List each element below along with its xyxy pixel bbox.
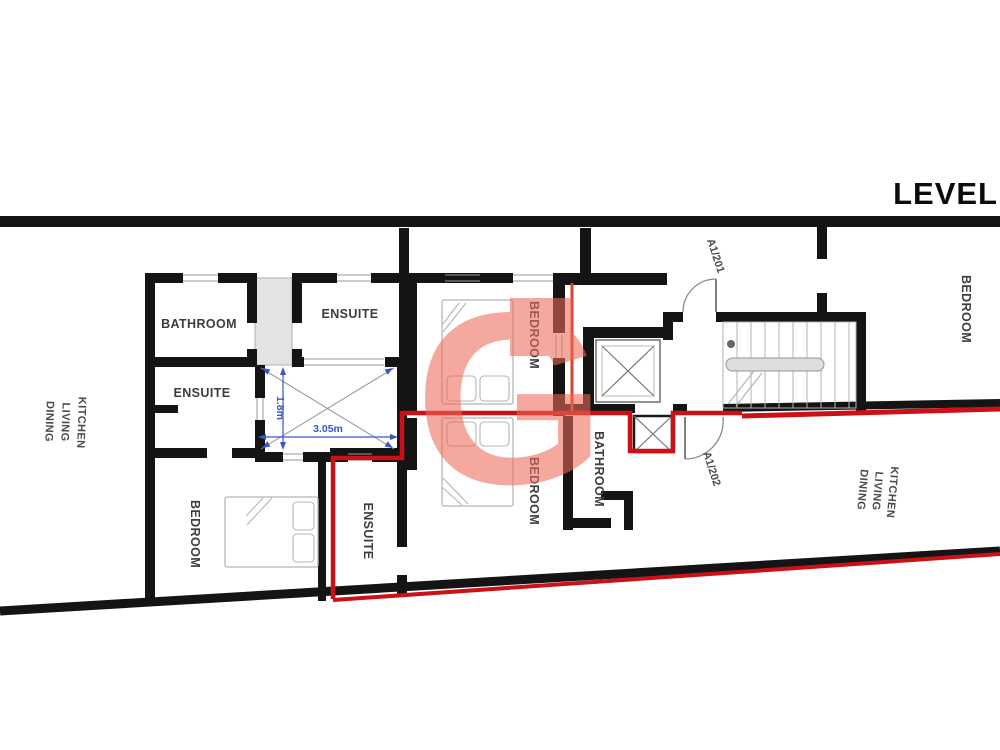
stair-start-dot <box>727 340 735 348</box>
room-label-bathroom-top-left: BATHROOM <box>161 317 237 331</box>
dimension-width: 3.05m <box>258 423 398 440</box>
unit-label-a1-201: A1/201 <box>704 237 726 274</box>
watermark-letter: G <box>415 261 606 535</box>
kld-left-line2: LIVING <box>58 402 71 441</box>
staircase <box>723 322 856 408</box>
kld-left-line1: KITCHEN <box>74 397 88 449</box>
kld-right-line2: LIVING <box>869 471 884 511</box>
dimension-width-label: 3.05m <box>313 423 343 435</box>
room-label-bedroom-top-right: BEDROOM <box>959 275 973 343</box>
kld-left-line3: DINING <box>42 401 55 442</box>
unit-label-a1-202: A1/202 <box>700 450 722 487</box>
kld-right-line3: DINING <box>854 469 870 511</box>
room-label-bedroom-bottom-left: BEDROOM <box>188 500 202 568</box>
dimension-depth-label: 1.8m <box>274 396 286 420</box>
service-shaft <box>634 416 672 452</box>
room-label-ensuite-top-center: ENSUITE <box>322 307 379 321</box>
room-label-ensuite-mid-left: ENSUITE <box>174 386 231 400</box>
floor-plan-drawing: LEVEL <box>0 0 1000 750</box>
room-label-ensuite-bottom-center: ENSUITE <box>361 503 375 560</box>
shaded-void <box>255 278 292 365</box>
bed-bottom-left <box>225 497 318 567</box>
level-title: LEVEL <box>893 176 998 211</box>
kld-right: KITCHEN LIVING DINING <box>854 463 900 518</box>
elevator-shaft <box>596 340 660 402</box>
handrail <box>726 358 824 371</box>
door-a1-201 <box>683 279 716 312</box>
watermark-logo: G <box>415 261 606 535</box>
kld-left: KITCHEN LIVING DINING <box>42 395 88 448</box>
kld-right-line1: KITCHEN <box>884 466 900 519</box>
floor-plan-page: LEVEL <box>0 0 1000 750</box>
